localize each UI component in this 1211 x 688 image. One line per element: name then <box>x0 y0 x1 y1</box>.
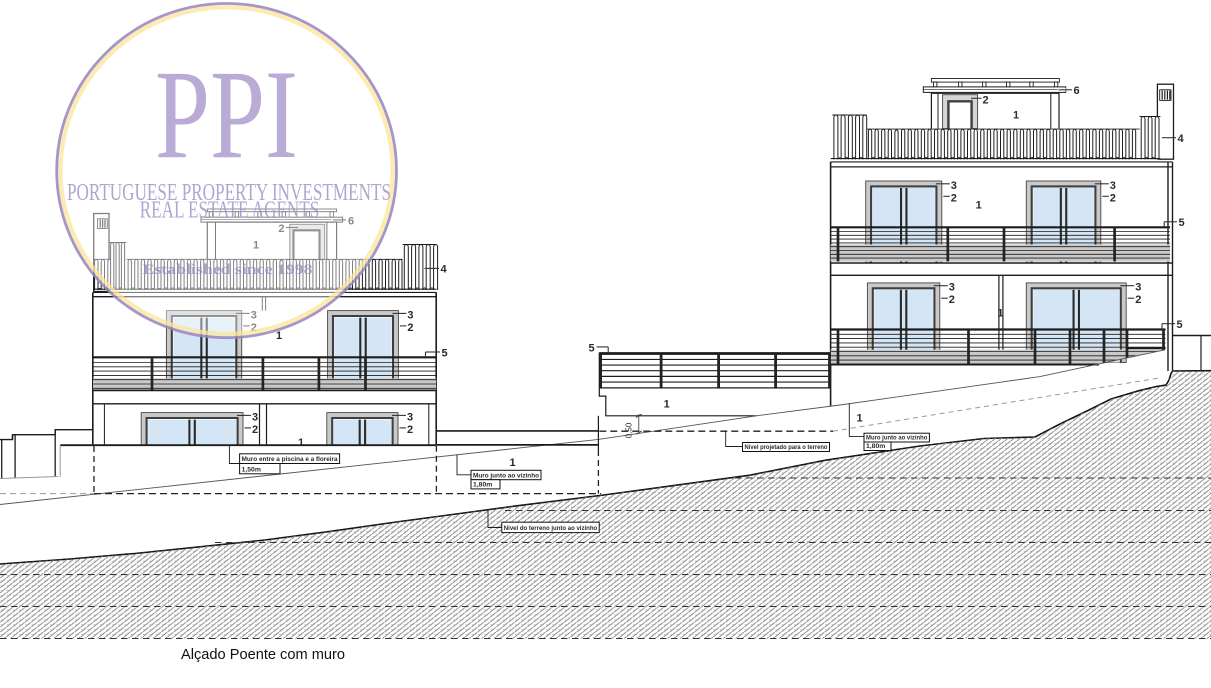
svg-text:3: 3 <box>1135 282 1141 294</box>
svg-text:2: 2 <box>1135 294 1141 306</box>
svg-text:1: 1 <box>664 399 670 411</box>
svg-text:1,80m: 1,80m <box>866 443 885 450</box>
svg-text:Muro junto ao vizinho: Muro junto ao vizinho <box>866 435 927 442</box>
svg-text:3: 3 <box>407 411 413 423</box>
svg-text:REAL ESTATE AGENTS: REAL ESTATE AGENTS <box>140 197 320 224</box>
svg-text:4: 4 <box>1178 133 1185 145</box>
svg-text:1,80m: 1,80m <box>473 482 492 489</box>
svg-text:Nivel projetado para o terreno: Nivel projetado para o terreno <box>745 444 828 451</box>
svg-text:2: 2 <box>252 424 258 436</box>
svg-text:Alçado Poente com muro: Alçado Poente com muro <box>181 647 345 663</box>
svg-text:PPI: PPI <box>155 45 298 185</box>
svg-text:2: 2 <box>407 424 413 436</box>
svg-text:5: 5 <box>1179 217 1185 229</box>
svg-text:3: 3 <box>252 411 258 423</box>
svg-text:3: 3 <box>407 309 413 321</box>
svg-text:2: 2 <box>951 192 957 204</box>
svg-text:1: 1 <box>1013 110 1019 122</box>
svg-text:5: 5 <box>1177 319 1183 331</box>
svg-text:3: 3 <box>949 282 955 294</box>
svg-text:1: 1 <box>976 200 982 212</box>
svg-text:3: 3 <box>951 180 957 192</box>
svg-text:3: 3 <box>1110 180 1116 192</box>
svg-text:Muro entre a piscina e a flore: Muro entre a piscina e a floreira <box>242 456 338 463</box>
svg-text:5: 5 <box>442 347 448 359</box>
svg-text:1: 1 <box>298 437 304 449</box>
svg-text:1,50m: 1,50m <box>242 466 261 473</box>
svg-text:Muro junto ao vizinho: Muro junto ao vizinho <box>473 472 539 479</box>
svg-text:6: 6 <box>1074 85 1080 97</box>
svg-text:Nivel do terreno junto ao vizi: Nivel do terreno junto ao vizinho <box>504 525 597 532</box>
svg-text:1: 1 <box>509 457 515 469</box>
svg-text:0,50: 0,50 <box>625 422 634 438</box>
svg-text:2: 2 <box>949 294 955 306</box>
svg-text:1: 1 <box>857 413 863 425</box>
svg-text:2: 2 <box>407 322 413 334</box>
svg-text:2: 2 <box>983 94 989 106</box>
svg-text:2: 2 <box>1110 192 1116 204</box>
svg-text:5: 5 <box>588 343 594 355</box>
svg-text:Established since 1998: Established since 1998 <box>143 262 313 278</box>
svg-text:4: 4 <box>441 264 448 276</box>
svg-text:1: 1 <box>276 330 282 342</box>
svg-text:1: 1 <box>997 308 1003 320</box>
